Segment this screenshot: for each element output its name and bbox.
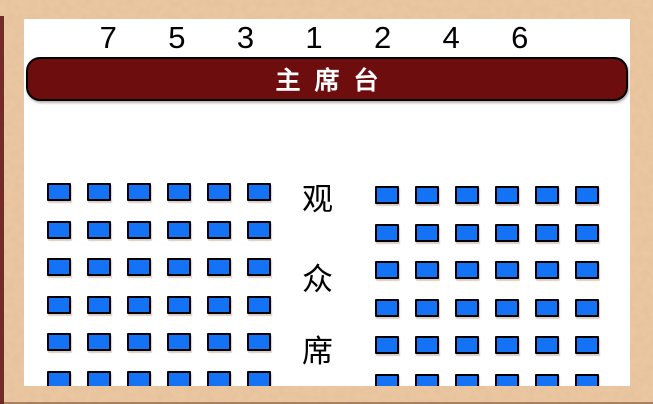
- seat-right-r2-c3: [455, 224, 479, 242]
- seat-left-r2-c4: [167, 221, 191, 239]
- seat-right-r2-c4: [495, 224, 519, 242]
- column-number-4: 4: [417, 19, 486, 56]
- seat-right-r5-c4: [495, 336, 519, 354]
- seat-right-r3-c4: [495, 261, 519, 279]
- seat-left-r2-c2: [87, 221, 111, 239]
- seat-left-r5-c3: [127, 333, 151, 351]
- seat-left-r6-c5: [207, 371, 231, 387]
- seat-left-r2-c6: [247, 221, 271, 239]
- seat-right-r6-c2: [415, 374, 439, 387]
- seat-left-r6-c4: [167, 371, 191, 387]
- seat-right-r2-c5: [535, 224, 559, 242]
- seat-left-r4-c3: [127, 296, 151, 314]
- seat-left-r2-c3: [127, 221, 151, 239]
- column-number-7: 7: [74, 19, 143, 56]
- seat-left-r3-c2: [87, 258, 111, 276]
- column-number-5: 5: [143, 19, 212, 56]
- seat-right-r4-c2: [415, 299, 439, 317]
- seat-right-r2-c2: [415, 224, 439, 242]
- diagram-panel: 7531246 主席台 观众席: [24, 19, 630, 386]
- seat-left-r1-c1: [47, 183, 71, 201]
- seat-left-r4-c2: [87, 296, 111, 314]
- column-number-2: 2: [348, 19, 417, 56]
- seat-left-r1-c5: [207, 183, 231, 201]
- seat-left-r1-c6: [247, 183, 271, 201]
- seat-left-r5-c4: [167, 333, 191, 351]
- left-edge-accent: [0, 16, 4, 404]
- seat-right-r2-c1: [375, 224, 399, 242]
- seat-left-r6-c6: [247, 371, 271, 387]
- seat-right-r3-c5: [535, 261, 559, 279]
- seat-left-r4-c6: [247, 296, 271, 314]
- seat-right-r5-c5: [535, 336, 559, 354]
- seat-right-r3-c1: [375, 261, 399, 279]
- seat-left-r5-c6: [247, 333, 271, 351]
- column-number-6: 6: [485, 19, 554, 56]
- seat-left-r3-c6: [247, 258, 271, 276]
- seat-left-r4-c4: [167, 296, 191, 314]
- seat-left-r5-c1: [47, 333, 71, 351]
- seat-right-r4-c4: [495, 299, 519, 317]
- audience-seats-left-block: [47, 183, 271, 386]
- seat-right-r6-c6: [575, 374, 599, 387]
- seat-right-r3-c6: [575, 261, 599, 279]
- seat-left-r6-c2: [87, 371, 111, 387]
- seat-left-r1-c3: [127, 183, 151, 201]
- seat-right-r4-c3: [455, 299, 479, 317]
- seat-left-r3-c1: [47, 258, 71, 276]
- seat-right-r1-c2: [415, 186, 439, 204]
- seat-right-r6-c5: [535, 374, 559, 387]
- audience-label-char-2: 众: [302, 263, 332, 297]
- seat-right-r1-c1: [375, 186, 399, 204]
- seat-left-r2-c5: [207, 221, 231, 239]
- seat-right-r5-c1: [375, 336, 399, 354]
- seat-left-r6-c1: [47, 371, 71, 387]
- audience-seats-right-block: [375, 186, 599, 386]
- seat-left-r1-c4: [167, 183, 191, 201]
- seat-right-r2-c6: [575, 224, 599, 242]
- seat-right-r6-c1: [375, 374, 399, 387]
- seat-left-r5-c2: [87, 333, 111, 351]
- seat-right-r1-c4: [495, 186, 519, 204]
- seat-left-r1-c2: [87, 183, 111, 201]
- seat-right-r1-c6: [575, 186, 599, 204]
- seat-left-r2-c1: [47, 221, 71, 239]
- audience-label: 观众席: [302, 19, 332, 386]
- column-number-3: 3: [211, 19, 280, 56]
- seat-left-r5-c5: [207, 333, 231, 351]
- seat-left-r6-c3: [127, 371, 151, 387]
- seat-right-r1-c3: [455, 186, 479, 204]
- seat-left-r4-c5: [207, 296, 231, 314]
- seat-right-r6-c4: [495, 374, 519, 387]
- seat-left-r3-c4: [167, 258, 191, 276]
- audience-label-char-1: 观: [302, 183, 332, 217]
- seat-left-r3-c5: [207, 258, 231, 276]
- audience-label-char-3: 席: [302, 335, 332, 369]
- seat-right-r3-c3: [455, 261, 479, 279]
- seat-right-r4-c1: [375, 299, 399, 317]
- seat-right-r4-c6: [575, 299, 599, 317]
- seat-left-r4-c1: [47, 296, 71, 314]
- seat-left-r3-c3: [127, 258, 151, 276]
- seat-right-r1-c5: [535, 186, 559, 204]
- seat-right-r5-c6: [575, 336, 599, 354]
- seat-right-r5-c3: [455, 336, 479, 354]
- rostrum-label: 主席台: [275, 61, 392, 97]
- seat-right-r3-c2: [415, 261, 439, 279]
- seat-right-r6-c3: [455, 374, 479, 387]
- seat-right-r4-c5: [535, 299, 559, 317]
- seating-diagram: 7531246 主席台 观众席: [0, 0, 653, 404]
- seat-right-r5-c2: [415, 336, 439, 354]
